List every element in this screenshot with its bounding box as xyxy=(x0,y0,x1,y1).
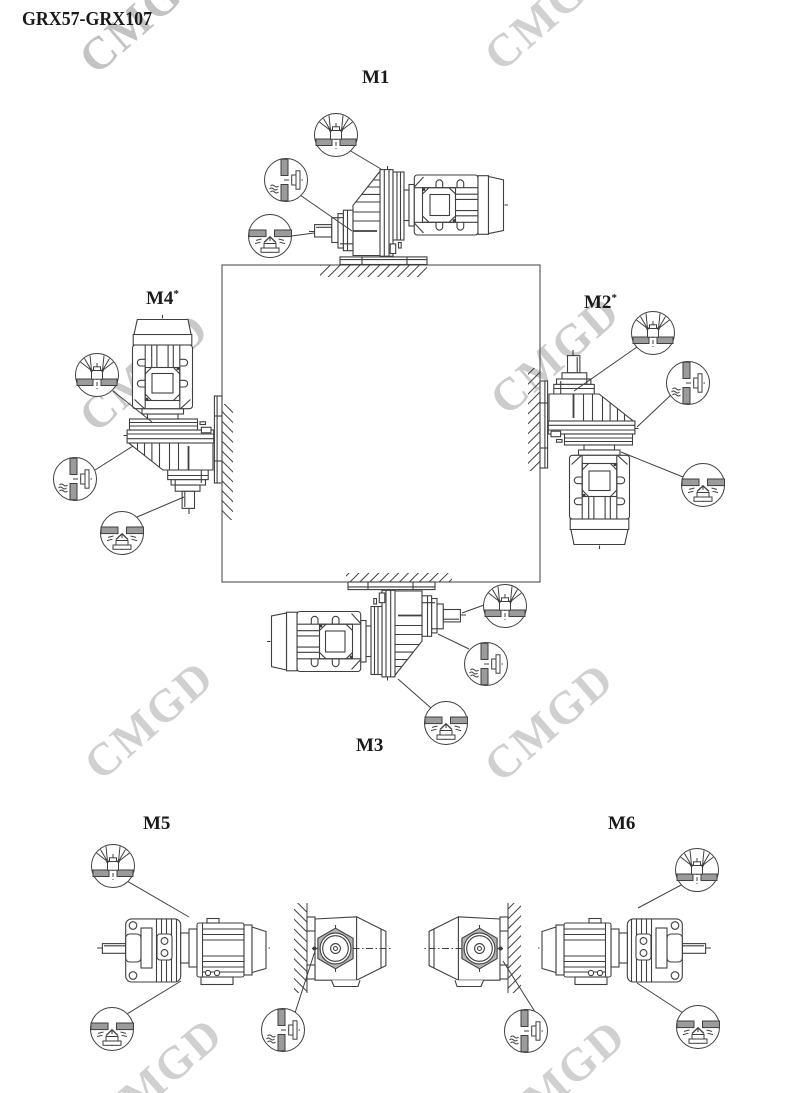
svg-text:GRX57-GRX107: GRX57-GRX107 xyxy=(22,8,152,30)
svg-text:M1: M1 xyxy=(362,67,389,88)
svg-text:CMGD: CMGD xyxy=(74,650,223,789)
svg-text:M4*: M4* xyxy=(146,288,179,309)
svg-text:M3: M3 xyxy=(356,735,383,756)
svg-text:CMGD: CMGD xyxy=(474,0,623,81)
svg-text:M6: M6 xyxy=(608,813,635,834)
svg-text:M5: M5 xyxy=(143,813,170,834)
